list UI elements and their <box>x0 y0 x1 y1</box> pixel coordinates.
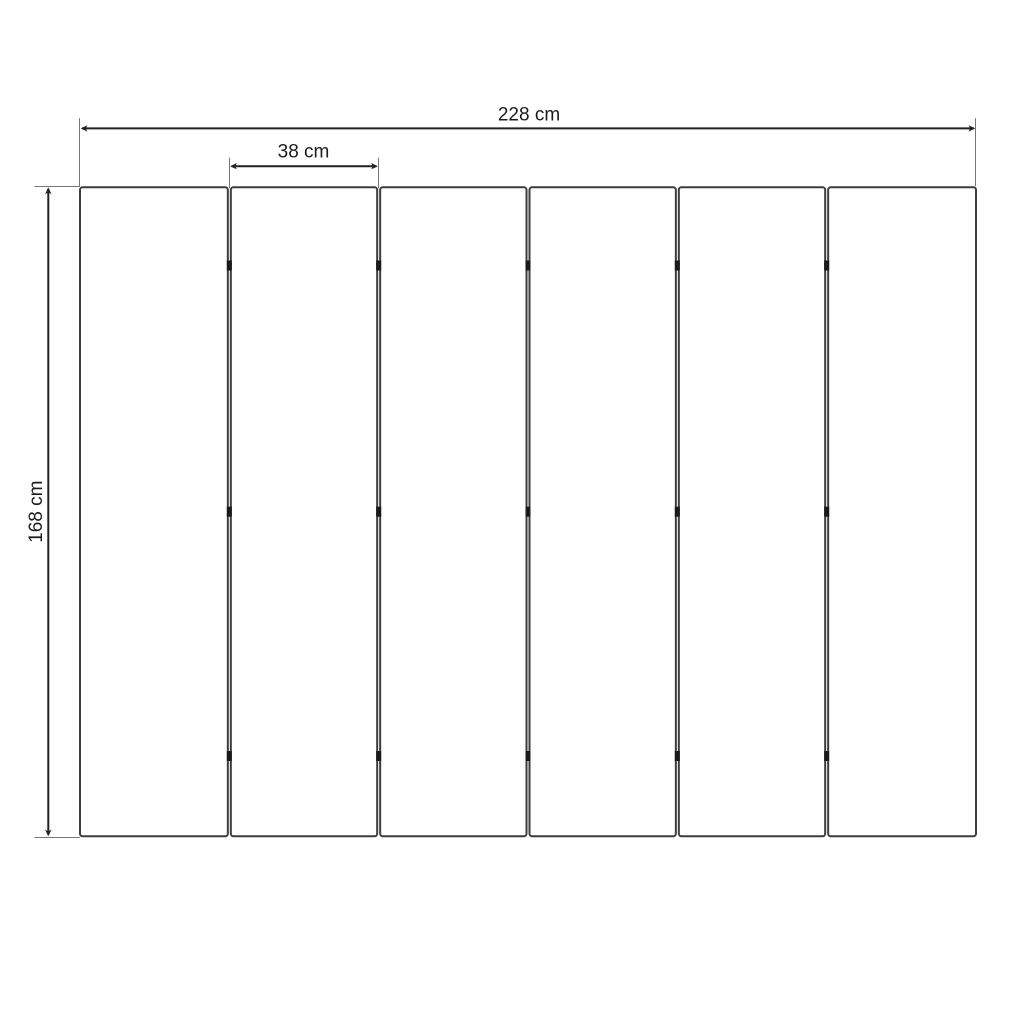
svg-text:168 cm: 168 cm <box>26 481 47 543</box>
svg-text:38 cm: 38 cm <box>278 141 330 162</box>
svg-text:228 cm: 228 cm <box>498 104 560 125</box>
